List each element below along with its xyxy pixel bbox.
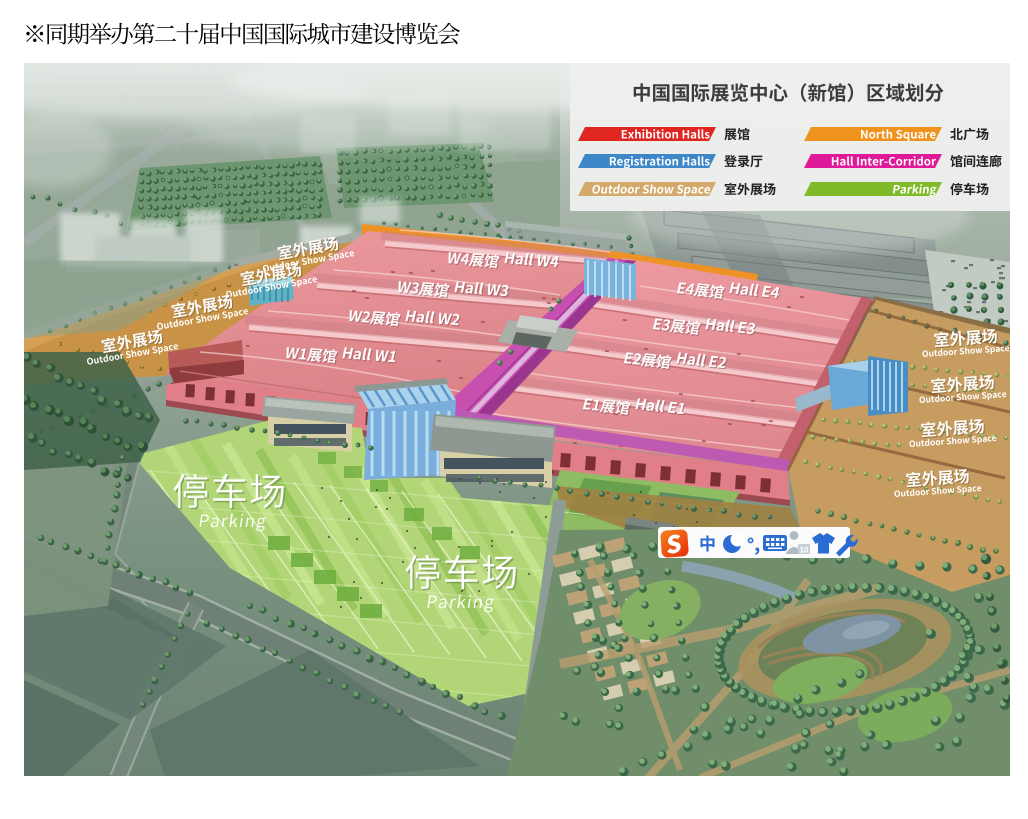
svg-text:10: 10 [800, 546, 809, 555]
